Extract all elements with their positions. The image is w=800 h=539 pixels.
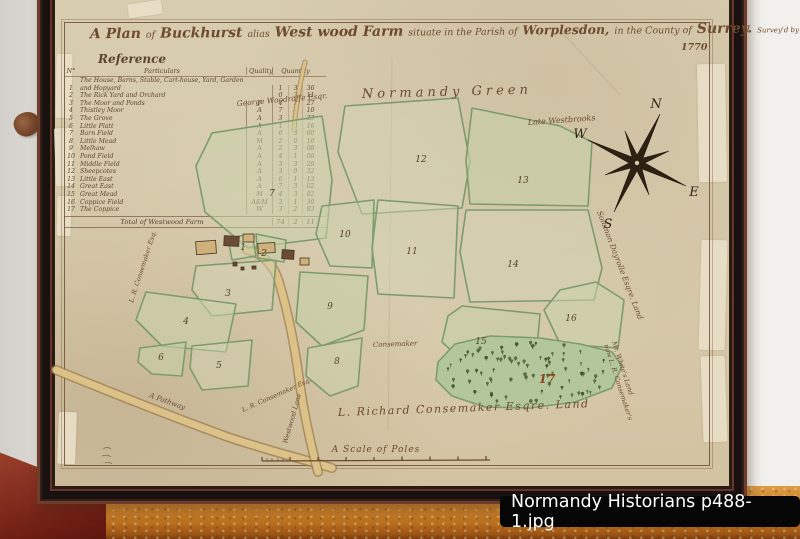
total-roods: 2 [288,218,302,226]
header-quality: Quality [246,67,272,75]
surveyor-credit: Survey'd by John Willock [757,26,800,35]
reference-header: N° Particulars Quality Quantity [64,67,326,77]
title-segment: alias [247,29,269,40]
reference-row: 8Little MeadM2016 [64,138,326,146]
reference-row: 11Middle FieldA3320 [64,161,326,169]
caption-text: Normandy Historians p488-1.jpg [511,492,789,532]
reference-row: 12SheepcotesA3032 [64,168,326,176]
title-segment: in the County of [614,25,692,37]
reference-total-row: Total of Westwood Farm 74 2 11 [64,216,326,228]
photograph-of-framed-map: A Plan of Buckhurst alias West wood Farm… [0,0,800,539]
reference-row: 1The House, Barns, Stable, Cart-house, Y… [64,77,326,92]
reference-row: 9MelhawA2308 [64,145,326,153]
total-acres: 74 [272,218,288,226]
title-segment: of [146,30,155,41]
reference-rows: 1The House, Barns, Stable, Cart-house, Y… [64,77,326,214]
title-segment: West wood Farm [275,24,404,41]
filename-caption: Normandy Historians p488-1.jpg [500,496,800,527]
reference-table: Reference N° Particulars Quality Quantit… [64,52,326,228]
reference-row: 5The GroveA3123 [64,115,326,123]
reference-row: 10Pond FieldA4100 [64,153,326,161]
reference-row: 4Thistley MoorA7310 [64,107,326,115]
reference-row: 14Great EastA7302 [64,183,326,191]
reference-row: 17The CoppiceW3203 [64,206,326,214]
reference-row: 16Coppice FieldA&M3130 [64,199,326,207]
title-segment: situate in the Parish of [408,27,517,39]
title-segment: Worplesdon, [522,22,609,38]
reference-title: Reference [98,52,326,66]
title-segment: Buckhurst [160,25,242,42]
reference-row: 7Barn FieldA6300 [64,130,326,138]
survey-date: 1770 [681,42,707,53]
header-particulars: Particulars [78,67,246,75]
reference-row: 6Little PlattA1016 [64,123,326,131]
title-segment: A Plan [90,26,141,42]
header-quantity: Quantity [272,67,318,75]
reference-row: 2The Rick Yard and Orchard0311 [64,92,326,100]
header-no: N° [64,67,78,75]
reference-row: 15Great MeadM4302 [64,191,326,199]
reference-row: 3The Moor and PondsP4127 [64,100,326,108]
reference-row: 13Little EastA6113 [64,176,326,184]
total-label: Total of Westwood Farm [78,218,246,226]
total-perches: 11 [302,218,318,226]
title-segment: Surrey. [697,21,752,37]
